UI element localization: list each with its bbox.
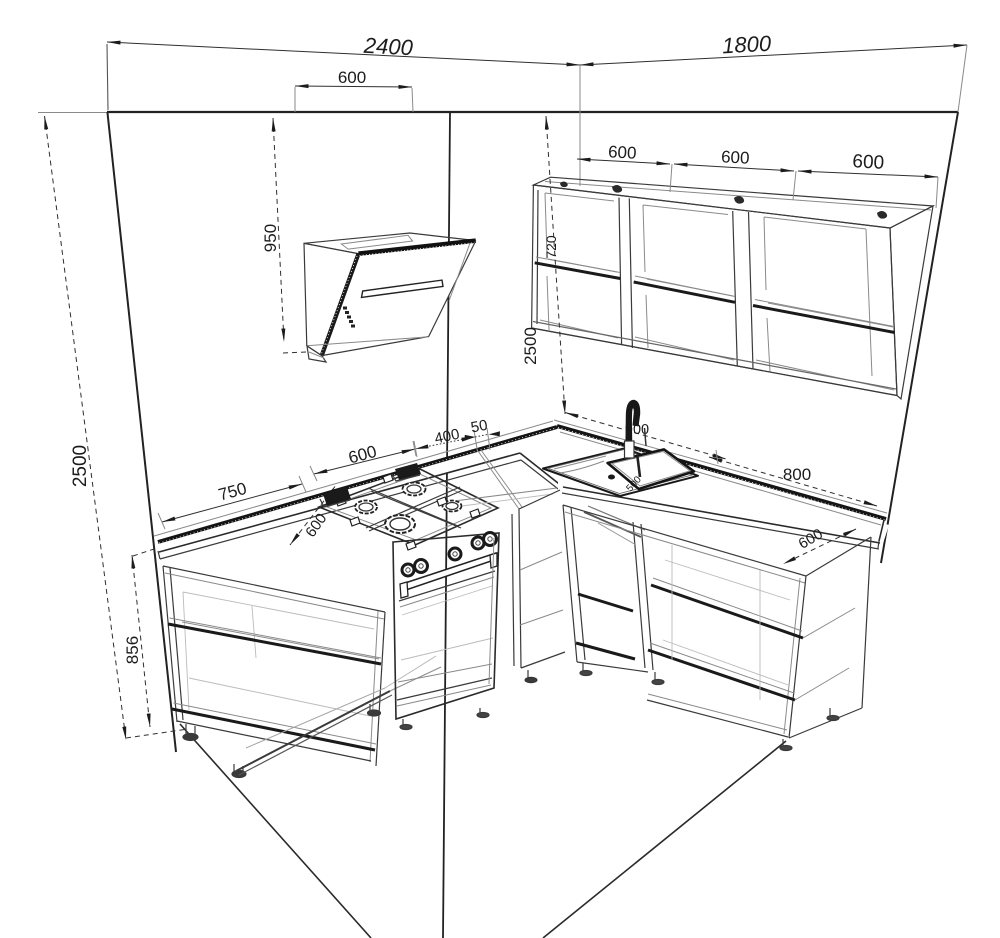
svg-text:600: 600 xyxy=(852,151,885,174)
svg-text:800: 800 xyxy=(783,465,811,484)
svg-text:600: 600 xyxy=(302,510,330,540)
svg-text:50: 50 xyxy=(470,417,489,437)
svg-text:2500: 2500 xyxy=(70,445,91,487)
svg-text:2500: 2500 xyxy=(521,327,540,365)
svg-text:600: 600 xyxy=(721,147,750,167)
svg-text:750: 750 xyxy=(216,479,248,505)
svg-text:600: 600 xyxy=(346,442,378,468)
svg-text:856: 856 xyxy=(123,636,142,664)
svg-text:600: 600 xyxy=(608,142,637,162)
svg-text:400: 400 xyxy=(433,426,461,448)
svg-text:2400: 2400 xyxy=(362,33,414,60)
svg-text:1800: 1800 xyxy=(721,31,772,59)
svg-text:950: 950 xyxy=(261,224,280,252)
svg-text:600: 600 xyxy=(338,68,366,87)
svg-text:720: 720 xyxy=(543,235,559,259)
